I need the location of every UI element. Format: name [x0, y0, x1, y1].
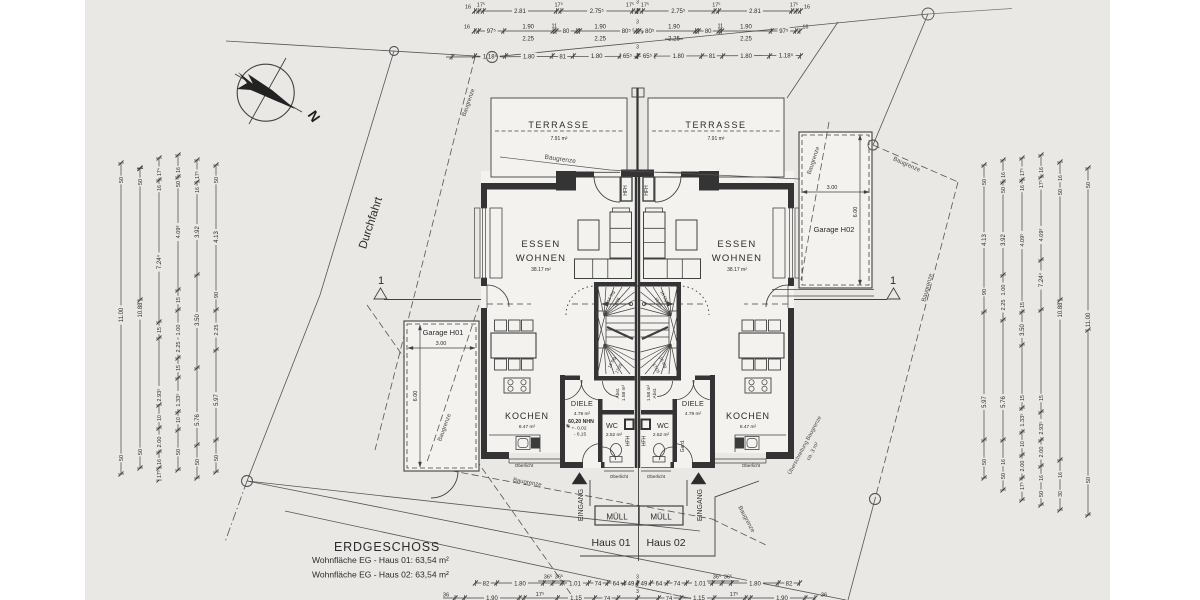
svg-text:16: 16 — [1058, 472, 1064, 478]
svg-text:WC: WC — [606, 421, 618, 430]
svg-text:50: 50 — [1001, 473, 1007, 479]
svg-text:1: 1 — [378, 275, 384, 287]
svg-text:6.00: 6.00 — [413, 391, 419, 402]
svg-text:15: 15 — [1020, 395, 1026, 401]
svg-text:2.81: 2.81 — [749, 9, 761, 15]
svg-text:8.47 m²: 8.47 m² — [740, 424, 757, 430]
svg-text:11.00: 11.00 — [119, 307, 125, 322]
svg-text:81: 81 — [709, 54, 716, 60]
svg-text:2.25: 2.25 — [740, 37, 752, 43]
svg-text:36: 36 — [821, 593, 827, 599]
svg-text:82: 82 — [786, 581, 793, 587]
svg-text:16: 16 — [1020, 185, 1026, 191]
svg-text:36⁵: 36⁵ — [724, 574, 732, 581]
svg-text:TERRASSE: TERRASSE — [685, 120, 746, 130]
svg-text:1.18⁵: 1.18⁵ — [779, 53, 794, 60]
svg-text:50: 50 — [119, 455, 125, 461]
svg-text:Garage H02: Garage H02 — [814, 225, 855, 234]
svg-text:17⁵: 17⁵ — [1039, 180, 1045, 188]
svg-text:2.75⁵: 2.75⁵ — [671, 8, 686, 15]
svg-text:50: 50 — [1058, 189, 1064, 195]
svg-text:HFH: HFH — [642, 435, 648, 446]
svg-text:15: 15 — [176, 297, 182, 303]
svg-text:1.80: 1.80 — [523, 54, 535, 60]
svg-text:16: 16 — [1058, 175, 1064, 181]
svg-text:1.00: 1.00 — [1001, 285, 1007, 296]
svg-text:50: 50 — [214, 177, 220, 183]
svg-text:1.33⁵: 1.33⁵ — [1019, 413, 1026, 426]
svg-text:3: 3 — [636, 575, 639, 581]
svg-text:Oberlicht: Oberlicht — [647, 474, 666, 479]
svg-text:1.15: 1.15 — [693, 596, 705, 600]
svg-text:4.09⁵: 4.09⁵ — [1019, 233, 1026, 246]
svg-text:2.00: 2.00 — [1020, 461, 1026, 472]
svg-text:50: 50 — [982, 179, 988, 185]
svg-text:10: 10 — [176, 417, 182, 423]
svg-text:ESSEN: ESSEN — [521, 239, 560, 250]
svg-text:1.90: 1.90 — [740, 25, 752, 31]
svg-text:1.15: 1.15 — [570, 596, 582, 600]
svg-text:TERRASSE: TERRASSE — [528, 120, 589, 130]
svg-text:7.24⁴: 7.24⁴ — [156, 254, 163, 269]
svg-text:1.33⁵: 1.33⁵ — [175, 393, 182, 406]
svg-text:17⁵: 17⁵ — [1020, 168, 1026, 176]
svg-text:17⁵: 17⁵ — [712, 2, 720, 9]
svg-text:Wohnfläche EG - Haus 02: 63,54: Wohnfläche EG - Haus 02: 63,54 m² — [312, 570, 449, 580]
svg-text:5.76: 5.76 — [1001, 396, 1007, 408]
svg-text:7.91 m²: 7.91 m² — [551, 136, 568, 142]
svg-text:17⁵: 17⁵ — [157, 470, 163, 478]
svg-text:49: 49 — [641, 581, 648, 587]
svg-text:1.58 m²: 1.58 m² — [646, 384, 652, 401]
svg-text:2.00: 2.00 — [157, 437, 163, 448]
svg-text:EINGANG: EINGANG — [578, 489, 585, 521]
svg-text:3.50: 3.50 — [195, 314, 201, 326]
svg-text:1.01: 1.01 — [569, 581, 581, 587]
svg-text:10: 10 — [1020, 441, 1026, 447]
svg-text:3.92: 3.92 — [1001, 234, 1007, 246]
svg-text:HFH: HFH — [626, 435, 632, 446]
svg-text:15: 15 — [176, 365, 182, 371]
svg-text:3.92: 3.92 — [195, 226, 201, 238]
svg-text:74: 74 — [595, 581, 602, 587]
svg-text:16: 16 — [176, 167, 182, 173]
svg-text:1.90: 1.90 — [668, 25, 680, 31]
svg-text:7.24⁴: 7.24⁴ — [1038, 272, 1045, 287]
svg-text:WOHNEN: WOHNEN — [516, 253, 566, 264]
svg-text:KOCHEN: KOCHEN — [505, 411, 549, 421]
svg-text:Gard.: Gard. — [680, 440, 686, 453]
svg-text:ESSEN: ESSEN — [717, 239, 756, 250]
svg-text:97⁵: 97⁵ — [487, 28, 497, 35]
svg-text:2.81: 2.81 — [514, 9, 526, 15]
svg-text:1.90: 1.90 — [486, 596, 498, 600]
svg-text:16: 16 — [1001, 459, 1007, 465]
svg-text:90: 90 — [982, 289, 988, 295]
svg-text:1: 1 — [890, 275, 896, 287]
svg-text:11: 11 — [551, 24, 557, 30]
svg-text:HFH: HFH — [623, 185, 629, 196]
svg-text:60,20 NHN: 60,20 NHN — [568, 419, 594, 425]
svg-text:50: 50 — [176, 181, 182, 187]
svg-text:16: 16 — [1039, 475, 1045, 481]
svg-text:DIELE: DIELE — [682, 399, 704, 408]
svg-text:3: 3 — [636, 20, 639, 26]
svg-text:5.97: 5.97 — [982, 396, 988, 408]
svg-text:17⁵: 17⁵ — [477, 2, 485, 9]
svg-text:2.93⁵: 2.93⁵ — [156, 388, 163, 401]
svg-text:74: 74 — [666, 596, 673, 600]
svg-text:17⁵: 17⁵ — [536, 591, 545, 598]
svg-text:3.00: 3.00 — [436, 341, 447, 347]
svg-text:90: 90 — [214, 292, 220, 298]
svg-text:50: 50 — [176, 449, 182, 455]
svg-text:4.09³: 4.09³ — [176, 225, 182, 238]
svg-text:16: 16 — [1039, 167, 1045, 173]
svg-text:5.76: 5.76 — [195, 414, 201, 426]
svg-text:MÜLL: MÜLL — [650, 513, 672, 522]
svg-text:1.90: 1.90 — [522, 25, 534, 31]
svg-text:+- 0,02: +- 0,02 — [571, 426, 586, 432]
svg-text:38.17 m²: 38.17 m² — [531, 267, 551, 273]
svg-text:50: 50 — [1086, 477, 1092, 483]
svg-text:1.01: 1.01 — [694, 581, 706, 587]
svg-text:2.25: 2.25 — [1001, 300, 1007, 311]
svg-text:80: 80 — [705, 29, 712, 35]
svg-text:HFH: HFH — [644, 185, 650, 196]
svg-text:4.79 m²: 4.79 m² — [685, 411, 702, 417]
svg-text:2.52 m²: 2.52 m² — [653, 432, 670, 438]
svg-text:1.80: 1.80 — [514, 581, 526, 587]
svg-text:11.00: 11.00 — [1086, 312, 1092, 327]
svg-text:10.88: 10.88 — [1058, 302, 1064, 318]
svg-text:16: 16 — [802, 25, 808, 31]
svg-text:16: 16 — [465, 5, 471, 11]
svg-text:36⁵: 36⁵ — [555, 574, 563, 581]
svg-text:65⁵: 65⁵ — [643, 53, 653, 60]
svg-text:MÜLL: MÜLL — [606, 513, 628, 522]
svg-text:2.52 m²: 2.52 m² — [606, 432, 623, 438]
svg-text:3: 3 — [636, 0, 639, 6]
svg-text:2.25: 2.25 — [176, 342, 182, 353]
svg-text:16: 16 — [195, 187, 201, 193]
svg-text:2.25: 2.25 — [522, 37, 534, 43]
svg-text:WC: WC — [657, 421, 669, 430]
svg-text:Haus 01: Haus 01 — [591, 537, 630, 549]
svg-text:Oberlicht: Oberlicht — [742, 463, 761, 468]
svg-text:1.00: 1.00 — [176, 325, 182, 336]
svg-text:2.25: 2.25 — [594, 37, 606, 43]
svg-text:4.09³: 4.09³ — [1039, 228, 1045, 241]
svg-text:65⁵: 65⁵ — [623, 53, 633, 60]
svg-text:KOCHEN: KOCHEN — [726, 411, 770, 421]
svg-text:16: 16 — [804, 5, 810, 11]
svg-text:Garage H01: Garage H01 — [423, 328, 464, 337]
svg-text:50: 50 — [1039, 491, 1045, 497]
svg-text:50: 50 — [1086, 182, 1092, 188]
svg-text:50: 50 — [195, 459, 201, 465]
svg-text:8.47 m²: 8.47 m² — [519, 424, 536, 430]
svg-text:17⁵: 17⁵ — [730, 591, 739, 598]
svg-text:2.93⁵: 2.93⁵ — [1038, 421, 1045, 434]
svg-text:36⁵: 36⁵ — [544, 574, 552, 581]
svg-text:7.91 m²: 7.91 m² — [708, 136, 725, 142]
svg-text:3.50: 3.50 — [1020, 324, 1026, 336]
svg-text:1.80: 1.80 — [672, 54, 684, 60]
svg-text:74: 74 — [674, 581, 681, 587]
svg-text:4.79 m²: 4.79 m² — [574, 411, 591, 417]
svg-text:Haus 02: Haus 02 — [646, 537, 685, 549]
svg-text:3.00: 3.00 — [827, 185, 838, 191]
svg-text:2.25: 2.25 — [214, 325, 220, 336]
svg-text:64: 64 — [656, 581, 663, 587]
svg-text:3: 3 — [636, 589, 639, 595]
svg-text:1.18⁵: 1.18⁵ — [483, 54, 498, 61]
svg-text:Wohnfläche EG - Haus 01: 63,54: Wohnfläche EG - Haus 01: 63,54 m² — [312, 555, 449, 565]
svg-text:17⁵: 17⁵ — [641, 2, 649, 9]
svg-text:81: 81 — [559, 54, 566, 60]
svg-text:80: 80 — [563, 29, 570, 35]
svg-text:50: 50 — [119, 177, 125, 183]
svg-text:64: 64 — [613, 581, 620, 587]
svg-text:50: 50 — [982, 459, 988, 465]
svg-text:17⁵: 17⁵ — [554, 2, 562, 9]
svg-text:49: 49 — [628, 581, 635, 587]
svg-text:50: 50 — [138, 179, 144, 185]
svg-text:ERDGESCHOSS: ERDGESCHOSS — [334, 540, 440, 554]
svg-text:- 0,15: - 0,15 — [574, 432, 587, 438]
svg-text:3: 3 — [636, 45, 639, 51]
svg-text:11: 11 — [717, 24, 723, 30]
svg-text:1.58 m²: 1.58 m² — [621, 384, 627, 401]
svg-text:38.17 m²: 38.17 m² — [727, 267, 747, 273]
svg-text:36⁵: 36⁵ — [713, 574, 721, 581]
svg-text:6.00: 6.00 — [853, 207, 859, 218]
svg-text:WOHNEN: WOHNEN — [712, 253, 762, 264]
svg-text:50: 50 — [1001, 187, 1007, 193]
svg-text:97⁵: 97⁵ — [779, 28, 789, 35]
svg-text:1.80: 1.80 — [591, 54, 603, 60]
svg-text:10: 10 — [157, 415, 163, 421]
svg-text:50: 50 — [138, 449, 144, 455]
svg-text:1.80: 1.80 — [740, 54, 752, 60]
svg-text:4.13: 4.13 — [982, 234, 988, 246]
svg-text:15: 15 — [157, 327, 163, 333]
svg-text:50: 50 — [214, 455, 220, 461]
svg-text:5.97: 5.97 — [214, 394, 220, 406]
svg-text:15: 15 — [1039, 395, 1045, 401]
svg-text:17⁵: 17⁵ — [626, 2, 634, 9]
svg-text:16: 16 — [464, 25, 470, 31]
svg-text:17⁵: 17⁵ — [195, 171, 201, 179]
svg-text:17⁵: 17⁵ — [790, 2, 798, 9]
svg-text:1.90: 1.90 — [776, 596, 788, 600]
svg-text:2.75⁵: 2.75⁵ — [590, 8, 605, 15]
svg-text:4.13: 4.13 — [214, 231, 220, 243]
svg-text:EINGANG: EINGANG — [697, 489, 704, 521]
svg-text:2.00: 2.00 — [1039, 447, 1045, 458]
svg-text:1.80: 1.80 — [749, 581, 761, 587]
svg-text:16: 16 — [157, 185, 163, 191]
svg-text:16: 16 — [157, 459, 163, 465]
svg-text:1.90: 1.90 — [594, 25, 606, 31]
svg-text:16: 16 — [1001, 172, 1007, 178]
svg-text:17⁴: 17⁴ — [157, 168, 163, 176]
svg-text:Abst.: Abst. — [652, 388, 658, 399]
svg-text:10.88: 10.88 — [138, 302, 144, 318]
svg-text:Oberlicht: Oberlicht — [515, 463, 534, 468]
svg-text:80⁵: 80⁵ — [622, 28, 632, 35]
svg-text:80⁵: 80⁵ — [645, 28, 655, 35]
svg-text:DIELE: DIELE — [571, 399, 593, 408]
svg-text:15: 15 — [1020, 302, 1026, 308]
svg-text:74: 74 — [604, 596, 611, 600]
svg-text:30: 30 — [1058, 491, 1064, 497]
svg-text:2.25: 2.25 — [668, 37, 680, 43]
svg-text:Abst.: Abst. — [615, 388, 621, 399]
svg-text:82: 82 — [483, 581, 490, 587]
svg-text:17⁵: 17⁵ — [1020, 482, 1026, 490]
svg-text:Oberlicht: Oberlicht — [610, 474, 629, 479]
svg-text:36: 36 — [443, 593, 449, 599]
